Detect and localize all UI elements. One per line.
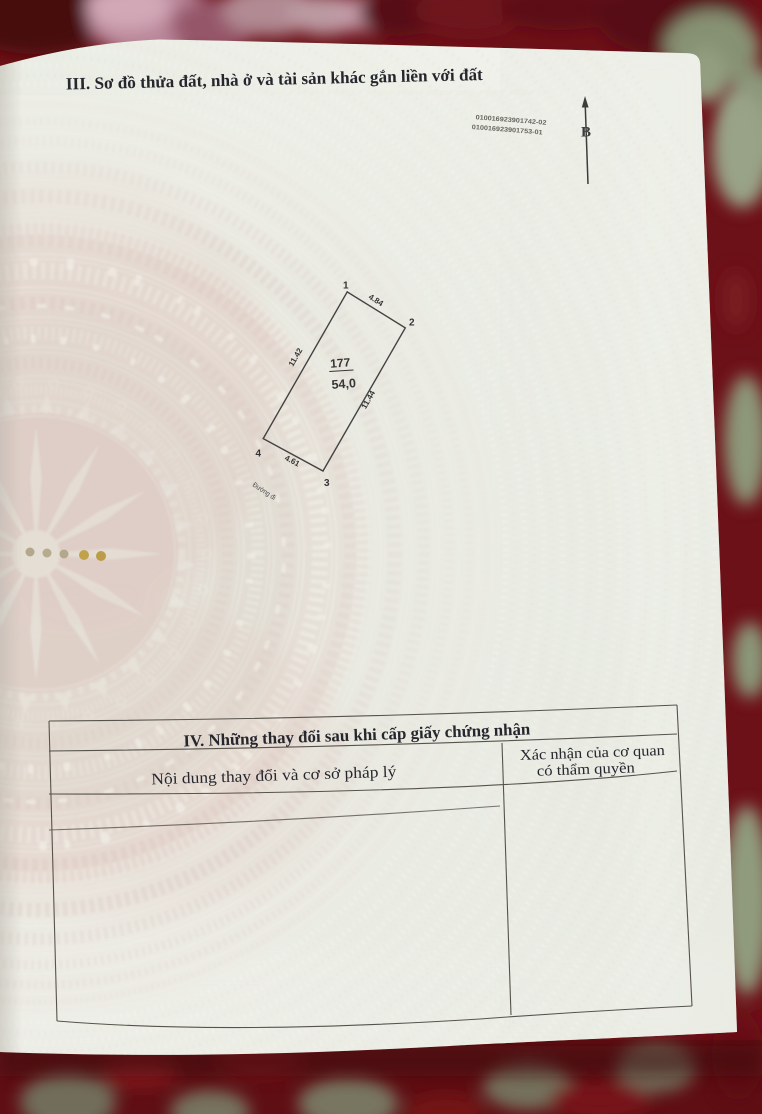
- svg-text:177: 177: [330, 355, 351, 370]
- svg-text:1: 1: [343, 281, 349, 292]
- svg-text:4: 4: [256, 449, 262, 460]
- svg-text:3: 3: [324, 478, 330, 489]
- svg-text:54,0: 54,0: [331, 376, 356, 392]
- svg-text:B: B: [581, 125, 591, 141]
- svg-text:2: 2: [409, 317, 415, 328]
